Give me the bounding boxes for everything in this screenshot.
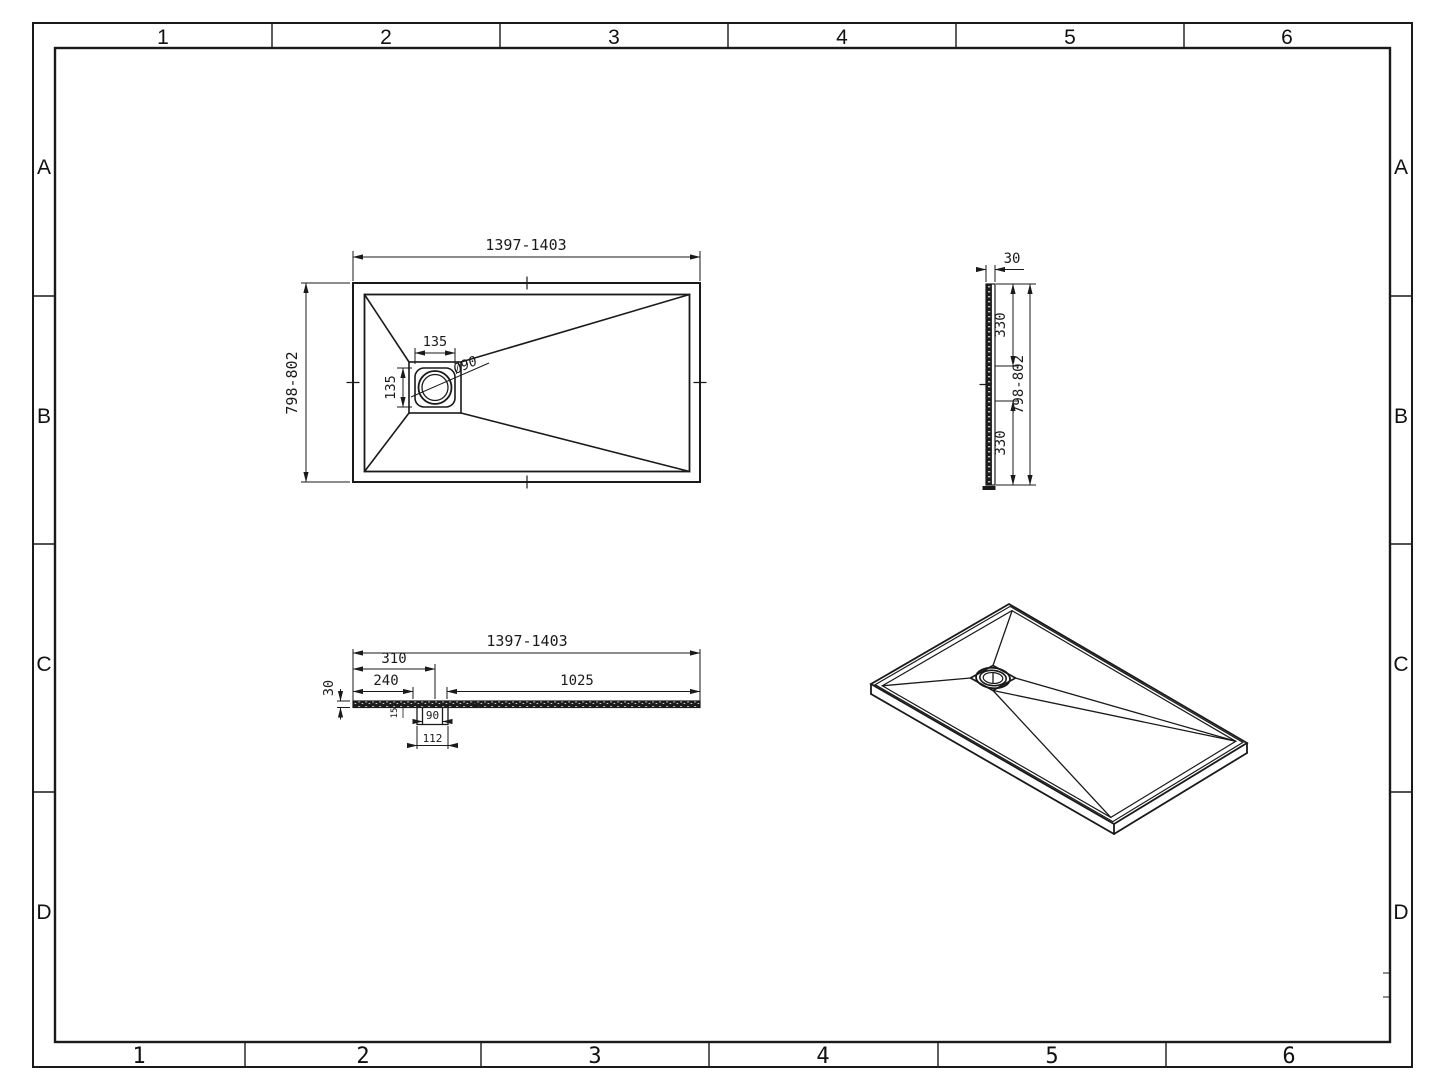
frame-zone-labels-right: A B C D	[1393, 156, 1408, 924]
plan-dimensions	[301, 251, 700, 482]
zone-right-c: C	[1393, 653, 1408, 676]
zone-top-4: 4	[836, 26, 848, 49]
zone-left-d: D	[36, 901, 51, 924]
section-drain-to-end-dim: 1025	[560, 673, 594, 689]
zone-top-5: 5	[1064, 26, 1076, 49]
frame-zone-labels-top: 1 2 3 4 5 6	[157, 26, 1293, 49]
side-drain-offset-top-dim: 330	[993, 312, 1009, 337]
side-view: 30 330 330 798-802	[977, 251, 1036, 490]
side-overall-depth-dim: 798-802	[1011, 355, 1027, 414]
zone-bottom-3: 3	[588, 1044, 601, 1069]
plan-overall-width-dim: 1397-1403	[485, 236, 566, 254]
plan-outer-edge	[353, 283, 700, 482]
zone-right-d: D	[1393, 901, 1408, 924]
zone-bottom-2: 2	[356, 1044, 369, 1069]
drawing-canvas: 1 2 3 4 5 6 1 2 3 4 5 6 A B C D A B C D	[0, 0, 1445, 1075]
zone-top-6: 6	[1281, 26, 1293, 49]
plan-slope-lines	[365, 295, 690, 472]
section-recess-dim: 15	[390, 708, 400, 719]
zone-bottom-6: 6	[1282, 1044, 1295, 1069]
zone-left-a: A	[37, 156, 51, 179]
zone-left-b: B	[37, 405, 51, 428]
technical-drawing-sheet: 1 2 3 4 5 6 1 2 3 4 5 6 A B C D A B C D	[0, 0, 1445, 1075]
section-drain-flange-dim: 112	[423, 732, 443, 745]
section-drain-center-dim: 310	[381, 651, 406, 667]
frame-inner-border	[55, 48, 1390, 1042]
section-thickness-dim: 30	[321, 680, 337, 696]
drawing-frame: 1 2 3 4 5 6 1 2 3 4 5 6 A B C D A B C D	[33, 23, 1412, 1069]
frame-outer-border	[33, 23, 1412, 1067]
side-drain-offset-bottom-dim: 330	[993, 430, 1009, 455]
side-base-mark	[983, 486, 996, 490]
zone-top-3: 3	[608, 26, 620, 49]
zone-left-c: C	[36, 653, 51, 676]
zone-right-b: B	[1394, 405, 1408, 428]
zone-top-1: 1	[157, 26, 169, 49]
zone-top-2: 2	[380, 26, 392, 49]
section-profile	[353, 701, 700, 708]
plan-inner-rim	[365, 295, 690, 472]
iso-drain	[971, 666, 1016, 691]
frame-zone-dividers	[33, 23, 1412, 1067]
section-view: 1397-1403 310 240 1025 30 15 90 112	[321, 632, 700, 749]
plan-drain-depth-dim: 135	[383, 375, 399, 399]
frame-zone-labels-bottom: 1 2 3 4 5 6	[132, 1044, 1295, 1069]
section-overall-width-dim: 1397-1403	[486, 632, 567, 650]
plan-drain-width-dim: 135	[423, 334, 447, 350]
isometric-view	[871, 604, 1247, 834]
section-drain-edge-dim: 240	[373, 673, 398, 689]
plan-drain	[409, 362, 489, 413]
plan-overall-depth-dim: 798-802	[283, 351, 301, 414]
plan-view: 1397-1403 798-802 135 135 Ø90	[283, 236, 706, 488]
zone-bottom-4: 4	[816, 1044, 829, 1069]
iso-inner-rim	[882, 611, 1236, 818]
frame-zone-labels-left: A B C D	[36, 156, 51, 924]
iso-slope-lines	[882, 611, 1236, 817]
zone-bottom-1: 1	[132, 1044, 145, 1069]
drain-inner-circle	[422, 375, 448, 401]
drain-outer-circle	[419, 371, 452, 404]
plan-center-ticks	[347, 277, 706, 488]
zone-bottom-5: 5	[1045, 1044, 1058, 1069]
section-drain-throat-dim: 90	[426, 709, 439, 722]
zone-right-a: A	[1394, 156, 1408, 179]
side-thickness-dim: 30	[1004, 251, 1021, 267]
iso-thickness-edges	[871, 684, 1247, 834]
